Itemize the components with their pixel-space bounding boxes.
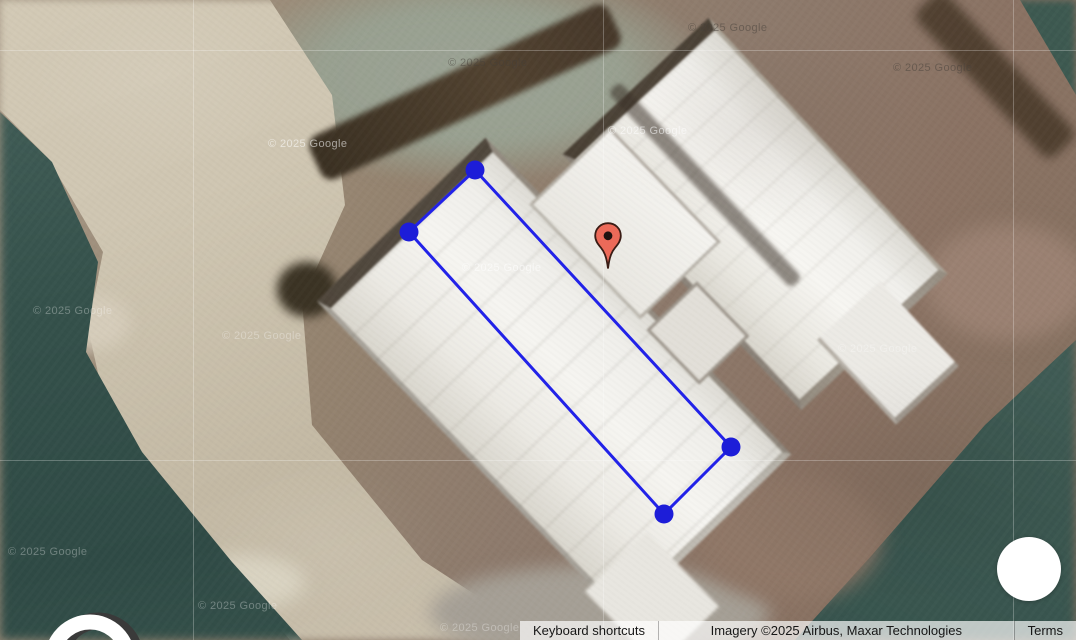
polygon-vertex-handle[interactable] [722, 438, 741, 457]
marker-pin[interactable] [593, 222, 623, 270]
marker-pin-body[interactable] [595, 223, 621, 268]
polygon-vertex-handle[interactable] [466, 161, 485, 180]
map-footer: Keyboard shortcuts Imagery ©2025 Airbus,… [520, 621, 1076, 640]
imagery-attribution: Imagery ©2025 Airbus, Maxar Technologies [659, 621, 1015, 640]
shape-overlay [0, 0, 1076, 640]
white-circle-button[interactable] [997, 537, 1061, 601]
polygon-vertex-handle[interactable] [655, 505, 674, 524]
google-logo-g [52, 622, 128, 640]
terms-link[interactable]: Terms [1015, 621, 1076, 640]
google-logo[interactable] [0, 598, 210, 640]
map-screen: © 2025 Google© 2025 Google© 2025 Google©… [0, 0, 1076, 640]
keyboard-shortcuts-link[interactable]: Keyboard shortcuts [520, 621, 659, 640]
marker-pin-dot [604, 231, 613, 240]
polygon-vertex-handle[interactable] [400, 223, 419, 242]
measurement-polygon[interactable] [409, 170, 731, 514]
